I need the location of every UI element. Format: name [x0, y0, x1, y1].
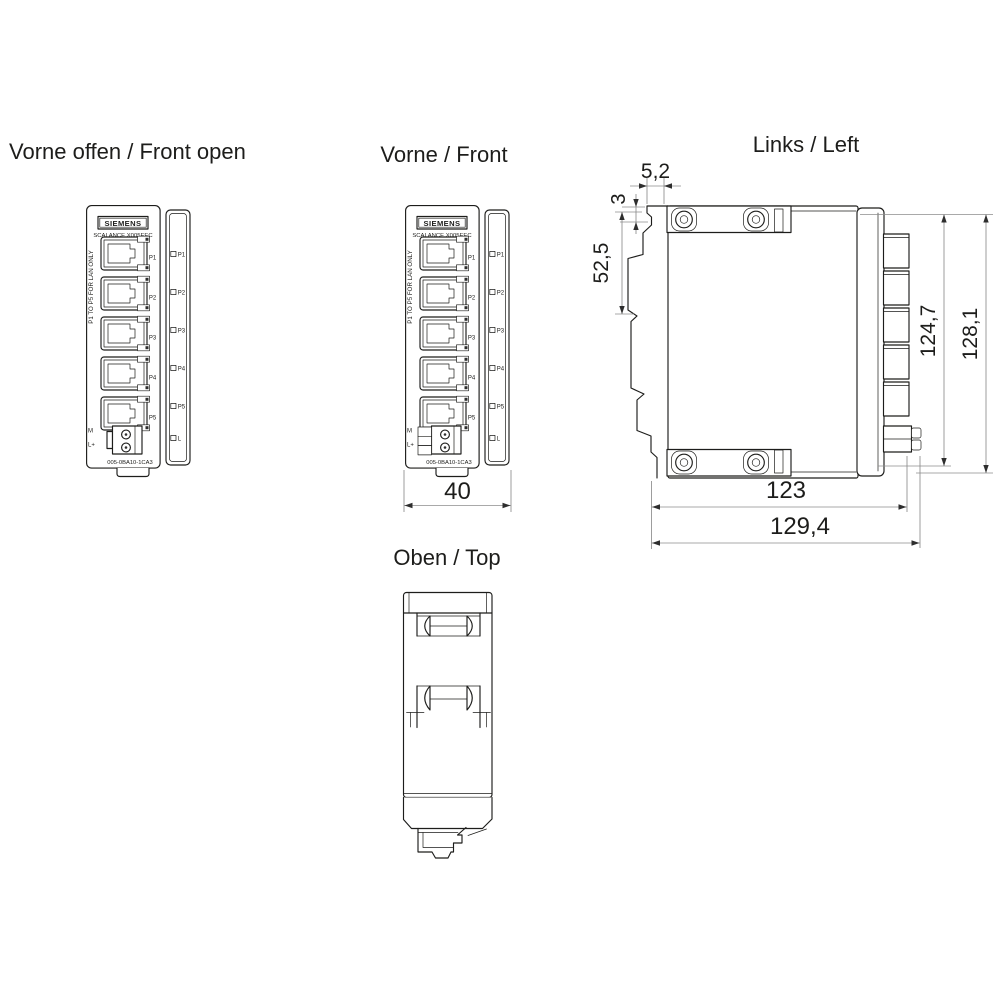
- dim-value-128-1: 128,1: [959, 308, 982, 361]
- port-bump: [884, 234, 910, 268]
- port-bump: [884, 308, 910, 342]
- arrowhead: [912, 540, 920, 545]
- title-front-open: Vorne offen / Front open: [9, 139, 246, 164]
- switch-front-open: [87, 206, 190, 477]
- dim-value-40: 40: [444, 478, 471, 505]
- connector-inner-step: [423, 833, 454, 848]
- arrowhead: [619, 306, 624, 314]
- mounting-plate: [667, 206, 791, 233]
- view-front: 40: [404, 206, 511, 512]
- arrowhead: [503, 503, 511, 508]
- arrowhead: [983, 215, 988, 223]
- din-rail-profile: [628, 206, 668, 478]
- top-mounting-plate: [667, 206, 791, 233]
- power-plug-fingers: [418, 427, 432, 455]
- view-left-side: 5,2 3 52,5: [590, 160, 993, 549]
- door-edge: [857, 208, 884, 476]
- connector-outline: [418, 828, 466, 859]
- dim-rail-tab-width: 5,2: [630, 160, 681, 204]
- lower-band: [404, 798, 493, 829]
- side-door-and-ports: [857, 208, 921, 476]
- dim-rail-upper-height: 52,5: [590, 212, 642, 314]
- title-front: Vorne / Front: [380, 142, 507, 167]
- arrowhead: [633, 199, 638, 207]
- title-left: Links / Left: [753, 132, 859, 157]
- dim-value-129-4: 129,4: [770, 513, 830, 540]
- dim-value-5-2: 5,2: [641, 160, 670, 183]
- dim-rail-tab-height: 3: [608, 193, 648, 234]
- dimensional-drawing-page: SIEMENS SCALANCE X005EEC P1 TO P5 FOR LA…: [0, 0, 1000, 1000]
- arrowhead: [983, 465, 988, 473]
- power-connector-tab: [912, 428, 922, 438]
- port-bump: [884, 271, 910, 305]
- view-top: [404, 593, 493, 859]
- plug-finger: [418, 427, 432, 436]
- arrowhead: [633, 222, 638, 230]
- bottom-connector: [418, 828, 487, 859]
- arrowhead: [652, 504, 660, 509]
- arrowhead: [941, 458, 946, 466]
- arrowhead: [639, 183, 647, 188]
- side-body: [668, 206, 858, 478]
- bottom-mounting-plate: [667, 450, 791, 477]
- mounting-plate: [667, 450, 791, 477]
- connector-chamfer: [468, 829, 487, 836]
- port-bump: [884, 345, 910, 379]
- arrowhead: [941, 215, 946, 223]
- dim-value-52-5: 52,5: [590, 243, 613, 284]
- title-top: Oben / Top: [393, 545, 500, 570]
- plug-finger: [418, 446, 432, 455]
- dim-value-124-7: 124,7: [917, 305, 940, 358]
- arrowhead: [652, 540, 660, 545]
- plug-finger: [418, 436, 432, 445]
- arrowhead: [405, 503, 413, 508]
- port-bump: [884, 382, 910, 416]
- arrowhead: [664, 183, 672, 188]
- arrowhead: [899, 504, 907, 509]
- view-front-open: [87, 206, 190, 477]
- technical-drawing: SIEMENS SCALANCE X005EEC P1 TO P5 FOR LA…: [0, 0, 1000, 1000]
- arrowhead: [619, 212, 624, 220]
- power-connector-tab: [912, 440, 922, 450]
- dim-value-123: 123: [766, 477, 806, 504]
- dim-value-3: 3: [608, 193, 630, 204]
